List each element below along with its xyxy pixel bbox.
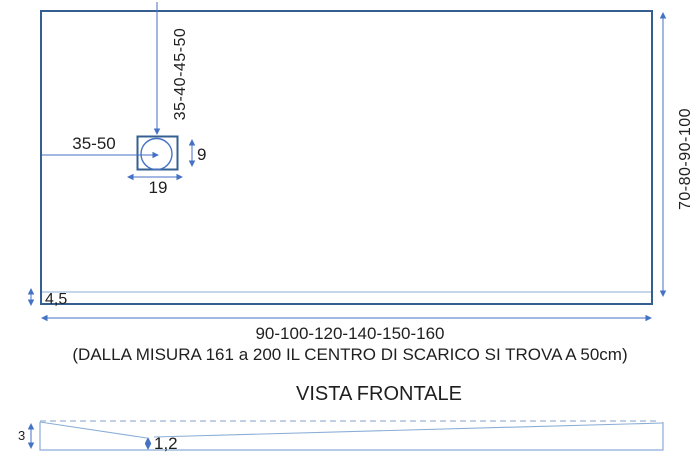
shower-tray-dimension-diagram: 35-40-45-50 35-50 9 19 70-80-90-100 4,5 … — [0, 0, 700, 466]
front-view-title: VISTA FRONTALE — [279, 384, 479, 405]
width-range-label: 90-100-120-140-150-160 — [150, 325, 550, 343]
tray-top-view-outline — [41, 11, 652, 304]
drain-box-height-label: 9 — [197, 146, 206, 164]
drain-position-note: (DALLA MISURA 161 a 200 IL CENTRO DI SCA… — [50, 346, 650, 364]
front-view-right-slope — [154, 423, 663, 437]
border-thickness-label: 4,5 — [45, 292, 67, 309]
front-center-thickness-label: 1,2 — [154, 435, 178, 453]
depth-range-label: 70-80-90-100 — [678, 103, 694, 215]
drain-left-offset-label: 35-50 — [68, 135, 120, 153]
drain-box-width-label: 19 — [138, 179, 178, 197]
front-view-left-slope — [40, 422, 147, 438]
front-side-height-label: 3 — [18, 429, 25, 443]
drain-top-offset-label: 35-40-45-50 — [173, 19, 189, 129]
